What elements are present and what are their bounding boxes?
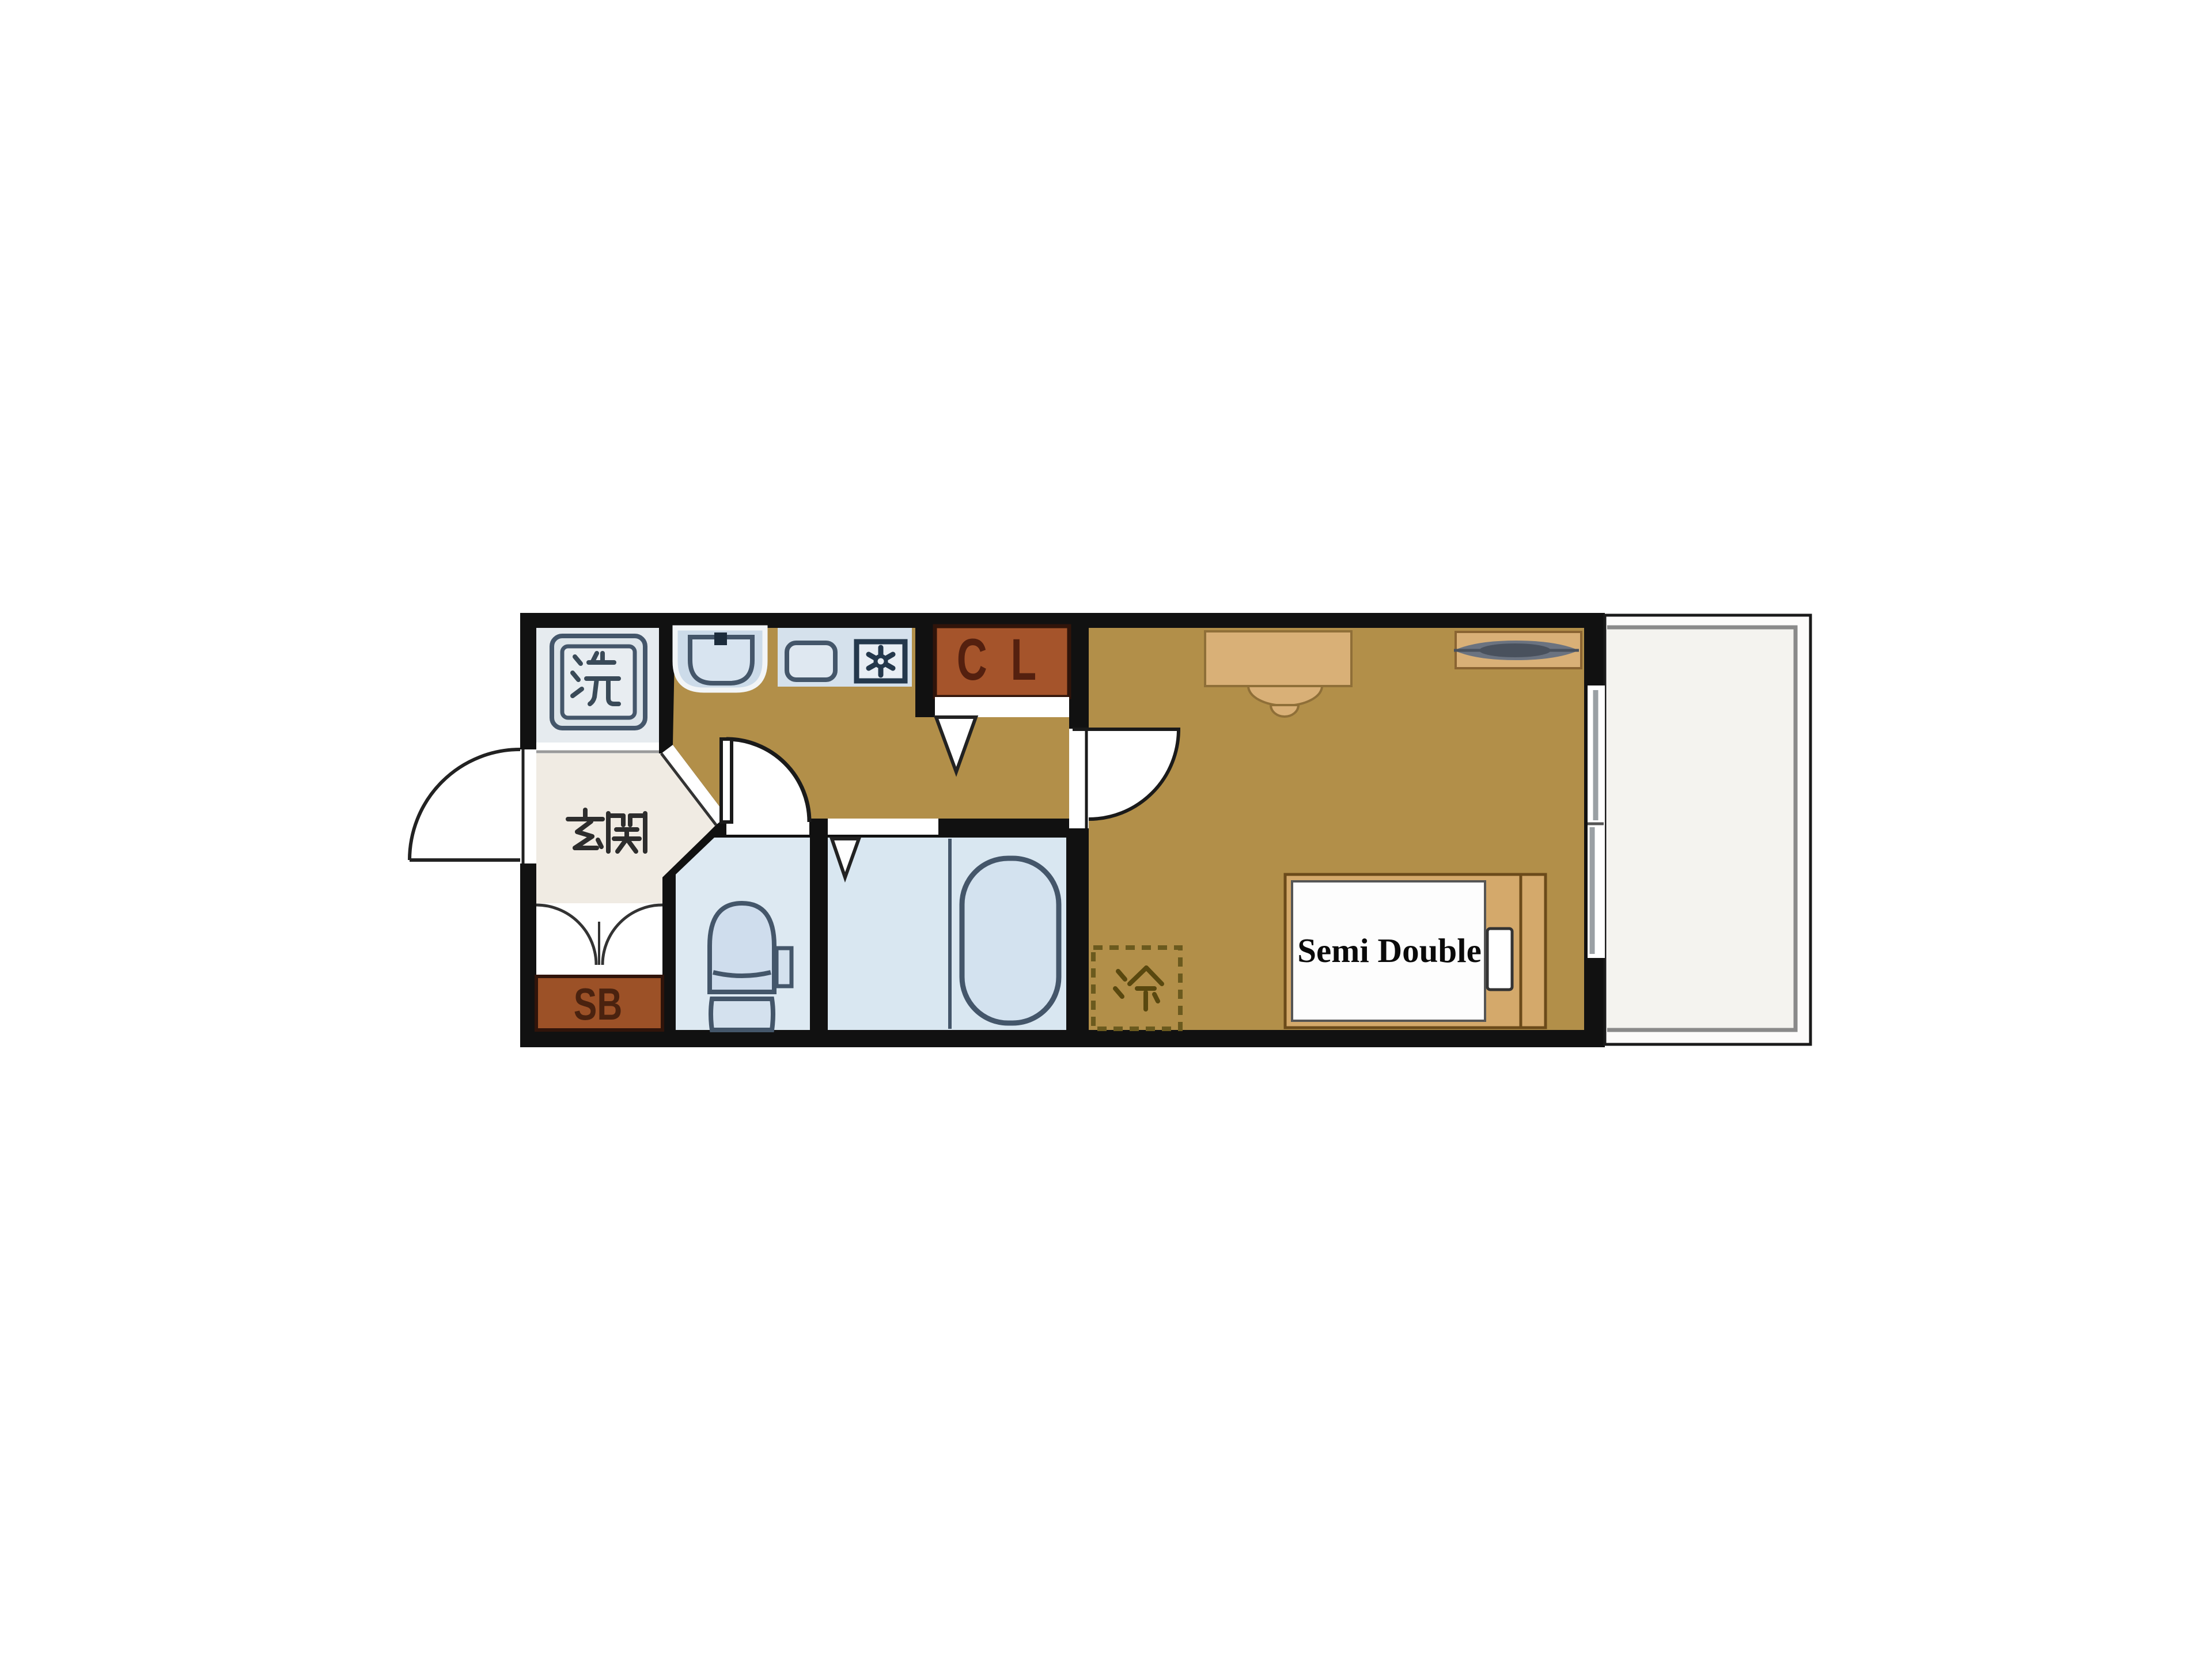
svg-text:C L: C L: [957, 627, 1043, 692]
svg-text:SB: SB: [574, 979, 623, 1029]
svg-text:Semi Double: Semi Double: [1297, 931, 1482, 969]
